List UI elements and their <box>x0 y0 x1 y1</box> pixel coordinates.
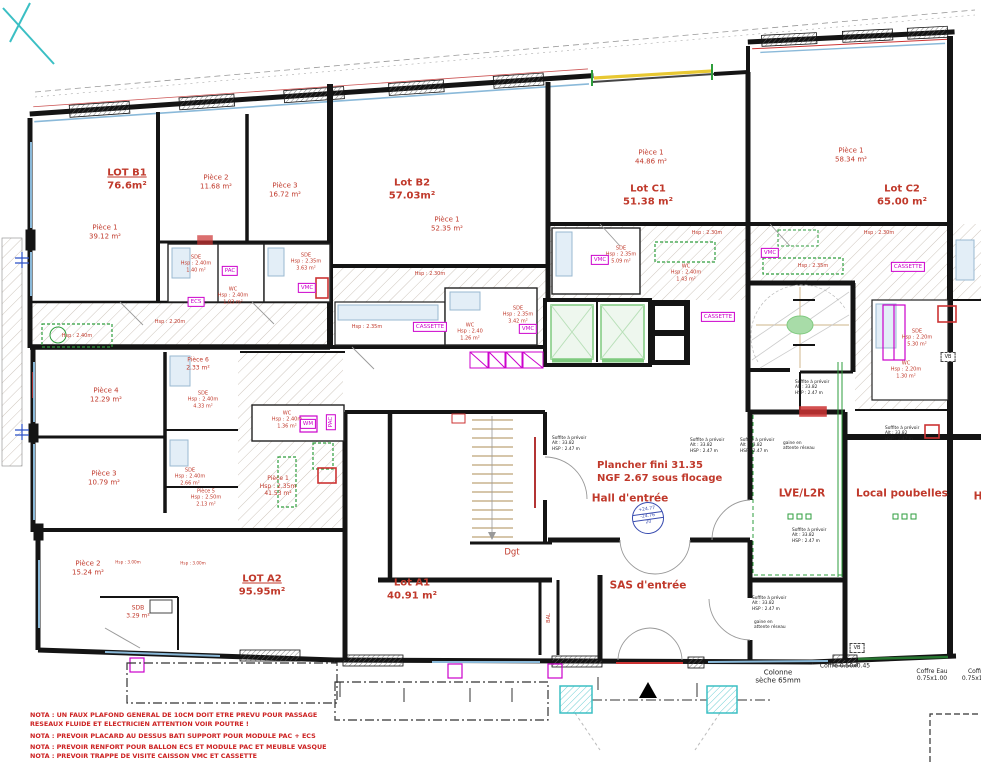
label-hsp-230-b2: Hsp : 2.30m <box>415 271 445 277</box>
pac-tag-2: PAC <box>326 414 336 430</box>
label-lot-b2: Lot B257.03m² <box>389 178 435 203</box>
label-wc-c2: WCHsp : 2.20m1.30 m² <box>891 361 921 380</box>
label-sdb-a2: SDB3.29 m² <box>126 605 150 620</box>
soffite-note-1: Soffite à prévoirAlt : 33.82HSP : 2.47 m <box>552 436 586 452</box>
label-hsp-230-c2: Hsp : 2.30m <box>864 230 894 236</box>
label-room-a2-p6: Pièce 62.33 m² <box>186 357 210 372</box>
label-room-b1-p3: Pièce 316.72 m² <box>269 181 301 199</box>
label-hall-right-clipped: H <box>974 490 981 503</box>
label-sde-a2-1: SDEHsp : 2.40m4.33 m² <box>188 391 218 410</box>
cassette-tag-1: CASSETTE <box>413 322 447 332</box>
vmc-tag-1: VMC <box>298 283 316 293</box>
label-room-a2-p4: Pièce 412.29 m² <box>90 386 122 404</box>
vmc-tag-4: VMC <box>761 248 779 258</box>
ecs-tag: ECS <box>188 297 205 307</box>
wm-tag: WM <box>300 419 316 429</box>
label-local-poubelles: Local poubelles <box>856 487 948 500</box>
label-lve-l2r: LVE/L2R <box>779 487 825 500</box>
label-hsp-300-1: Hsp : 3.00m <box>115 559 140 564</box>
label-room-a2-p2: Pièce 215.24 m² <box>72 559 104 577</box>
label-wc-b2: WCHsp : 2.401.26 m² <box>457 323 483 342</box>
label-sde-b1-2: SDEHsp : 2.35m3.63 m² <box>291 253 321 272</box>
label-coffre-1: Coffre 0.50x0.45 <box>820 662 870 669</box>
soffite-note-7: Soffite à prévoirAlt : 33.82HSP : 2.47 m <box>795 380 829 396</box>
label-lot-a1: Lot A140.91 m² <box>387 578 437 603</box>
label-lot-c2: Lot C265.00 m² <box>877 184 927 209</box>
nota-block: NOTA : UN FAUX PLAFOND GENERAL DE 10CM D… <box>30 711 327 761</box>
label-hsp-235-b2: Hsp : 2.35m <box>352 324 382 330</box>
label-room-a2-p5: Pièce 5Hsp : 2.50m2.13 m² <box>191 489 221 508</box>
label-lot-c1: Lot C151.38 m² <box>623 184 673 209</box>
main-staircase <box>452 414 535 540</box>
label-room-a2-p1: Pièce 1Hsp : 2.35m41.53 m² <box>260 475 297 498</box>
label-sde-a2-2: SDEHsp : 2.40m2.66 m² <box>175 468 205 487</box>
nota-line-4: NOTA : PREVOIR RENFORT POUR BALLON ECS E… <box>30 743 327 752</box>
label-wc-c1: WCHsp : 2.40m1.43 m² <box>671 264 701 283</box>
label-coffre-2: Coffre0.75x1.00 <box>962 668 981 682</box>
label-sde-b2: SDEHsp : 2.35m3.42 m² <box>503 306 533 325</box>
label-colonne-seche: Colonnesèche 65mm <box>755 669 800 686</box>
vmc-tag-3: VMC <box>591 255 609 265</box>
label-sde-b1-1: SDEHsp : 2.40m1.40 m² <box>181 255 211 274</box>
label-floor-level-note: Plancher fini 31.35 NGF 2.67 sous flocag… <box>597 460 722 485</box>
nota-line-1: NOTA : UN FAUX PLAFOND GENERAL DE 10CM D… <box>30 711 327 720</box>
label-dgt: Dgt <box>504 548 519 559</box>
nota-line-5: NOTA : PREVOIR TRAPPE DE VISITE CAISSON … <box>30 752 327 761</box>
label-lot-a2: LOT A295.95m² <box>239 574 285 599</box>
vmc-tag-2: VMC <box>519 324 537 334</box>
cassette-tag-3: CASSETTE <box>891 262 925 272</box>
label-wc-a2: WCHsp : 2.40m1.36 m² <box>272 411 302 430</box>
label-sde-c2: SDEHsp : 2.20m5.30 m² <box>902 329 932 348</box>
label-room-b2-p1: Pièce 152.35 m² <box>431 215 463 233</box>
floor-plan-page: LOT B176.6m² Lot B257.03m² Lot C151.38 m… <box>0 0 981 768</box>
label-lot-b1: LOT B176.6m² <box>107 168 146 193</box>
label-coffre-eau: Coffre Eau0.75x1.00 <box>916 668 947 682</box>
hatched-zones <box>2 224 981 530</box>
nota-line-2: RESEAUX FLUIDE ET ELECTRICIEN ATTENTION … <box>30 720 327 729</box>
label-hsp-230-c1: Hsp : 2.30m <box>692 230 722 236</box>
label-room-a2-p3: Pièce 310.79 m² <box>88 469 120 487</box>
label-room-b1-p2: Pièce 211.68 m² <box>200 173 232 191</box>
label-room-b1-p1: Pièce 139.12 m² <box>89 223 121 241</box>
label-hsp-300-2: Hsp : 3.00m <box>180 560 205 565</box>
cassette-tag-2: CASSETTE <box>701 312 735 322</box>
gaine-note-1: gaine enattente réseau <box>783 441 815 452</box>
survey-cross-icon <box>3 3 54 64</box>
entrance-triangle-icon <box>639 682 657 698</box>
floor-plan-drawing <box>0 0 981 768</box>
soffite-note-3: Soffite à prévoirAlt : 33.82HSP : 2.47 m <box>740 438 774 454</box>
label-room-c2-p1: Pièce 158.34 m² <box>835 146 867 164</box>
label-room-c1-p1: Pièce 144.86 m² <box>635 148 667 166</box>
vb-tag-2: VB <box>850 643 865 653</box>
label-sas-entree: SAS d'entrée <box>610 579 687 592</box>
label-hsp-235-stair2: Hsp : 2.35m <box>798 263 828 269</box>
label-hsp-220: Hsp : 2.20m <box>155 319 185 325</box>
label-wc-b1: WCHsp : 2.40m1.03 m² <box>218 287 248 306</box>
soffite-note-5: Soffite à prévoirAlt : 33.82HSP : 2.47 m <box>792 528 826 544</box>
pac-tag-1: PAC <box>222 266 238 276</box>
gaine-note-2: gaine enattente réseau <box>754 620 786 631</box>
soffite-note-6: Soffite à prévoirAlt : 33.82HSP : 2.47 m <box>752 596 786 612</box>
label-bal: BAL <box>546 613 552 623</box>
label-hsp-240-kitchen: Hsp : 2.40m <box>62 333 92 339</box>
label-sde-c1: SDEHsp : 2.35m5.09 m² <box>606 246 636 265</box>
nota-line-3: NOTA : PREVOIR PLACARD AU DESSUS BATI SU… <box>30 732 327 741</box>
soffite-note-2: Soffite à prévoirAlt : 33.82HSP : 2.47 m <box>690 438 724 454</box>
secondary-staircase <box>751 285 849 368</box>
vb-tag-1: VB <box>941 352 956 362</box>
soffite-note-4: Soffite à prévoirAlt : 33.82HSP : 2.47 m <box>885 426 919 442</box>
